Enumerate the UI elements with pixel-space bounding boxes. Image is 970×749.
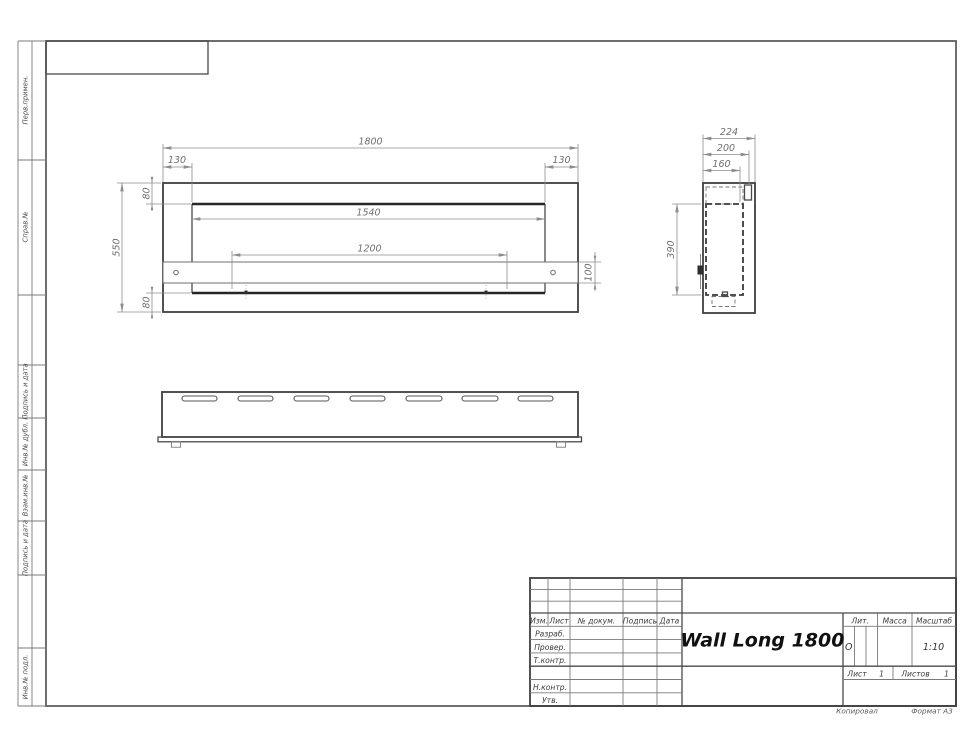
sheet-frame: Перв.примен. Справ.№ Подпись и дата Инв.… xyxy=(18,41,956,706)
tb-scale-value: 1:10 xyxy=(923,642,944,653)
dim-top-border: 80 xyxy=(142,187,153,199)
vent-slot xyxy=(462,396,498,401)
dim-band-height: 100 xyxy=(584,263,595,281)
mounting-hole-left xyxy=(174,270,179,275)
tb-sheet-number: 1 xyxy=(879,670,884,679)
tb-row-checked: Провер. xyxy=(534,643,566,652)
tb-mass-label: Масса xyxy=(883,616,908,625)
tb-row-approved: Утв. xyxy=(542,696,558,705)
tb-col-list: Лист xyxy=(548,616,569,625)
drawing-canvas: Перв.примен. Справ.№ Подпись и дата Инв.… xyxy=(0,0,970,749)
vent-slot xyxy=(182,396,217,401)
copied-by-label: Копировал xyxy=(836,707,878,716)
tb-sheet-label: Лист xyxy=(846,670,867,679)
mounting-band xyxy=(163,262,578,283)
tb-row-tcontrol: Т.контр. xyxy=(534,656,567,665)
document-title: Wall Long 1800 xyxy=(681,630,845,652)
tb-scale-label: Масштаб xyxy=(916,616,952,625)
tb-sheets-total: 1 xyxy=(944,670,949,679)
margin-label-repl-inv: Взам.инв.№ xyxy=(22,475,30,517)
format-label: Формат А3 xyxy=(911,707,953,716)
tb-liter-value: О xyxy=(845,642,853,653)
vent-slot xyxy=(518,396,553,401)
dim-overall-depth: 224 xyxy=(720,127,738,138)
center-mark-right xyxy=(485,291,488,294)
foot-right xyxy=(557,442,566,447)
top-left-designation-box xyxy=(46,41,208,74)
bottom-view xyxy=(158,392,582,447)
tb-row-developed: Разраб. xyxy=(535,630,565,639)
dim-inner-height: 390 xyxy=(666,240,677,258)
vent-slot xyxy=(350,396,385,401)
hidden-bottom-box xyxy=(712,297,735,307)
margin-label-first-use: Перв.примен. xyxy=(22,76,30,125)
dim-right-offset: 130 xyxy=(552,155,570,166)
vent-slot xyxy=(238,396,273,401)
dim-overall-width: 1800 xyxy=(358,137,382,148)
tb-col-izm: Изм. xyxy=(530,616,548,625)
side-bracket xyxy=(745,185,752,200)
dim-left-offset: 130 xyxy=(168,155,186,166)
tb-col-sign: Подпись xyxy=(623,616,657,625)
foot-left xyxy=(172,442,181,447)
dim-bottom-border: 80 xyxy=(142,296,153,308)
footer-notes: Копировал Формат А3 xyxy=(836,707,953,716)
center-mark-left xyxy=(245,291,248,294)
margin-label-sign-date-1: Подпись и дата xyxy=(22,363,30,419)
hidden-body-contour xyxy=(706,204,743,295)
dim-burner-spacing: 1200 xyxy=(357,244,381,255)
tb-col-date: Дата xyxy=(659,616,680,625)
tb-sheets-label: Листов xyxy=(900,670,930,679)
side-tab xyxy=(698,266,704,275)
side-view-dimensions: 224 200 160 390 xyxy=(666,127,755,295)
tb-col-doc: № докум. xyxy=(577,616,615,625)
title-block: Изм. Лист № докум. Подпись Дата Разраб. … xyxy=(530,578,956,706)
drawing-sheet: Перв.примен. Справ.№ Подпись и дата Инв.… xyxy=(0,0,970,749)
margin-label-inv-dup: Инв.№ дубл. xyxy=(22,422,30,466)
margin-label-ref-number: Справ.№ xyxy=(22,212,30,243)
tb-lit-label: Лит. xyxy=(850,616,868,625)
margin-label-inv-orig: Инв.№ подл. xyxy=(22,655,30,700)
dim-opening-width: 1540 xyxy=(356,208,380,219)
dim-overall-height: 550 xyxy=(112,238,123,256)
margin-label-sign-date-2: Подпись и дата xyxy=(22,520,30,576)
mounting-hole-right xyxy=(551,270,556,275)
dim-depth-200: 200 xyxy=(717,143,735,154)
front-view-dimensions: 1800 130 130 80 1540 1200 550 80 xyxy=(112,137,602,319)
tb-row-ncontrol: Н.контр. xyxy=(533,683,567,692)
vent-slot xyxy=(294,396,329,401)
vent-slot xyxy=(406,396,442,401)
side-view xyxy=(698,183,756,313)
dim-depth-160: 160 xyxy=(712,159,730,170)
